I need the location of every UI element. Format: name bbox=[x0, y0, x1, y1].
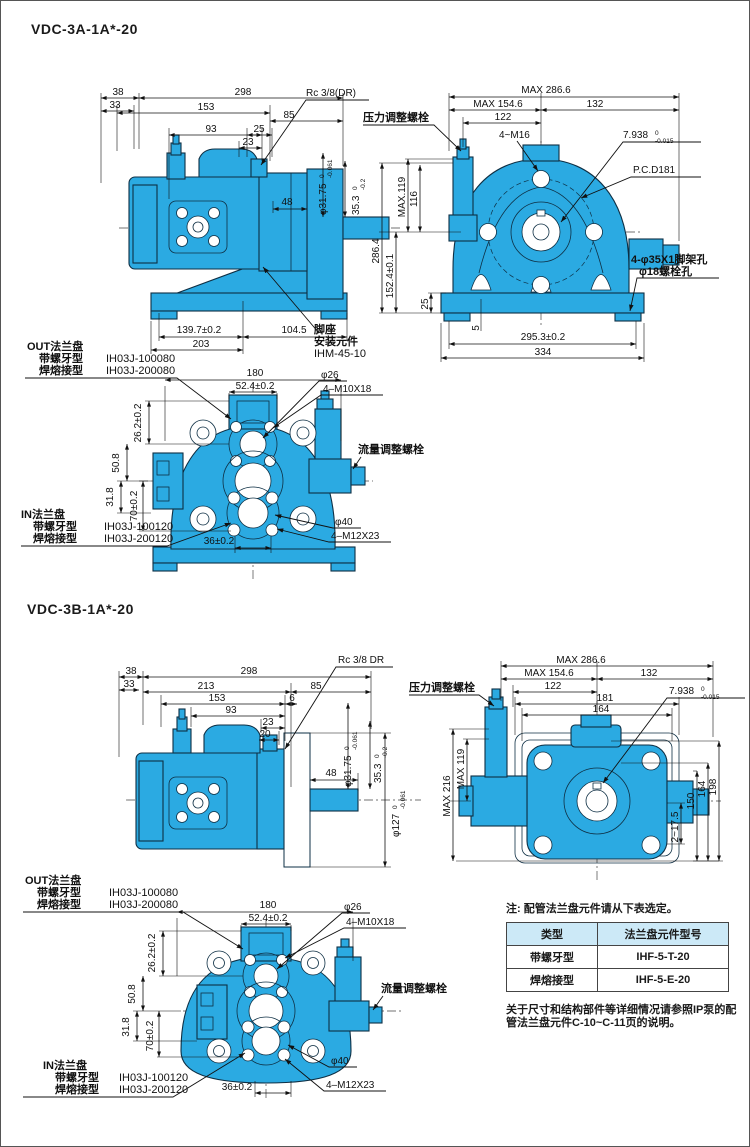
dim-50-8-b: 50.8 bbox=[127, 984, 138, 1004]
svg-text:0: 0 bbox=[352, 186, 359, 190]
svg-text:0: 0 bbox=[655, 130, 659, 137]
dim-48: 48 bbox=[281, 197, 293, 208]
table-row-threaded-type: 带螺牙型 bbox=[507, 946, 598, 969]
dim-164: 164 bbox=[593, 704, 610, 715]
dim-23: 23 bbox=[242, 137, 254, 148]
label-4m10-b: 4–M10X18 bbox=[346, 917, 395, 928]
dim-298-b: 298 bbox=[241, 666, 258, 677]
dim-85: 85 bbox=[283, 110, 295, 121]
dim-70: 70±0.2 bbox=[129, 490, 140, 521]
label-out-flange-b: OUT法兰盘 bbox=[25, 873, 81, 887]
dim-52-4-b: 52.4±0.2 bbox=[249, 913, 288, 924]
dim-7938-b: 7.938 bbox=[669, 686, 694, 697]
dim-132: 132 bbox=[587, 99, 604, 110]
view-3a-side: 38 298 33 153 85 93 25 23 Rc 3/8(DR) 48 … bbox=[101, 87, 401, 360]
dim-153-b: 153 bbox=[209, 693, 226, 704]
dim-33: 33 bbox=[109, 100, 121, 111]
label-pcd181: P.C.D181 bbox=[633, 165, 676, 176]
table-col-type: 类型 bbox=[507, 923, 598, 946]
dim-213: 213 bbox=[198, 681, 215, 692]
dim-max-286-6: MAX 286.6 bbox=[521, 85, 571, 96]
dim-104-5: 104.5 bbox=[281, 325, 306, 336]
dim-phi26: φ26 bbox=[321, 370, 339, 381]
dim-36-b: 36±0.2 bbox=[222, 1082, 253, 1093]
dim-7938: 7.938 bbox=[623, 130, 648, 141]
label-rc38-dr: Rc 3/8(DR) bbox=[306, 88, 356, 99]
dim-52-4: 52.4±0.2 bbox=[236, 381, 275, 392]
dim-key-height-b: 35.3 bbox=[373, 763, 384, 783]
svg-text:-0.2: -0.2 bbox=[382, 746, 389, 758]
label-out-threaded-a: 带螺牙型 bbox=[39, 351, 83, 365]
dim-max-154-6-b: MAX 154.6 bbox=[524, 668, 574, 679]
label-in-welded-b: 焊熔接型 bbox=[55, 1082, 99, 1096]
label-in-pn2-a: IH03J-200120 bbox=[104, 533, 173, 545]
dim-48-b: 48 bbox=[325, 768, 337, 779]
view-3b-front: MAX 286.6 MAX 154.6 132 122 181 164 7.93… bbox=[409, 655, 745, 881]
label-4m12-b: 4–M12X23 bbox=[326, 1080, 375, 1091]
svg-text:-0.2: -0.2 bbox=[360, 178, 367, 190]
label-in-pn1-a: IH03J-100120 bbox=[104, 521, 173, 533]
dim-164v: 164 bbox=[697, 780, 708, 797]
dim-20: 20 bbox=[259, 729, 271, 740]
dim-max-119a: MAX.119 bbox=[397, 176, 408, 217]
dim-122-b: 122 bbox=[545, 681, 562, 692]
flange-table: 类型 法兰盘元件型号 带螺牙型 IHF-5-T-20 焊熔接型 IHF-5-E-… bbox=[506, 922, 729, 992]
label-out-pn2-b: IH03J-200080 bbox=[109, 899, 178, 911]
dim-139-7: 139.7±0.2 bbox=[177, 325, 222, 336]
dim-33-b: 33 bbox=[123, 679, 135, 690]
label-mount-part: 安装元件 bbox=[314, 334, 358, 348]
label-4m10: 4–M10X18 bbox=[323, 384, 372, 395]
table-row-welded-type: 焊熔接型 bbox=[507, 969, 598, 992]
dim-181: 181 bbox=[597, 693, 614, 704]
dim-25: 25 bbox=[253, 124, 265, 135]
label-frame-hole-2: φ18螺栓孔 bbox=[639, 264, 692, 278]
dim-286-4: 286.4 bbox=[371, 238, 382, 263]
label-out-welded-b: 焊熔接型 bbox=[37, 897, 81, 911]
label-in-flange-a: IN法兰盘 bbox=[21, 507, 65, 521]
dim-70-b: 70±0.2 bbox=[145, 1020, 156, 1051]
svg-text:-0.061: -0.061 bbox=[352, 731, 359, 750]
dim-198: 198 bbox=[708, 778, 719, 795]
svg-text:-0.015: -0.015 bbox=[701, 694, 720, 701]
table-row-threaded-pn: IHF-5-T-20 bbox=[598, 946, 729, 969]
dim-key-height: 35.3 bbox=[351, 195, 362, 215]
dim-153: 153 bbox=[198, 102, 215, 113]
label-foot-seat: 脚座 bbox=[314, 322, 336, 336]
note-heading: 注: 配管法兰盘元件请从下表选定。 bbox=[506, 903, 738, 916]
label-4-m16: 4~M16 bbox=[499, 130, 530, 141]
dim-85-b: 85 bbox=[310, 681, 322, 692]
dim-31-8: 31.8 bbox=[105, 487, 116, 507]
dim-38: 38 bbox=[112, 87, 124, 98]
dim-23-b: 23 bbox=[262, 717, 274, 728]
dim-6: 6 bbox=[289, 693, 295, 704]
svg-text:-0.061: -0.061 bbox=[327, 159, 334, 178]
dim-122: 122 bbox=[495, 112, 512, 123]
dim-334: 334 bbox=[535, 347, 552, 358]
dim-2-17-5: 2~17.5 bbox=[670, 811, 681, 842]
dim-31-8-b: 31.8 bbox=[121, 1017, 132, 1037]
flange-note: 注: 配管法兰盘元件请从下表选定。 类型 法兰盘元件型号 带螺牙型 IHF-5-… bbox=[506, 903, 738, 1030]
dim-36: 36±0.2 bbox=[204, 536, 235, 547]
dim-26-2-b: 26.2±0.2 bbox=[147, 933, 158, 972]
label-rc38-dr-b: Rc 3/8 DR bbox=[338, 655, 384, 666]
dim-203: 203 bbox=[193, 339, 210, 350]
svg-text:0: 0 bbox=[319, 174, 326, 178]
label-out-threaded-b: 带螺牙型 bbox=[37, 885, 81, 899]
dim-150: 150 bbox=[686, 792, 697, 809]
label-frame-hole-1: 4-φ35X1脚架孔 bbox=[631, 252, 707, 266]
view-3b-side: 38 298 33 213 85 153 6 93 23 20 Rc 3/8 D… bbox=[119, 655, 421, 867]
dim-phi26-b: φ26 bbox=[344, 902, 362, 913]
dim-38-b: 38 bbox=[125, 666, 137, 677]
dim-50-8: 50.8 bbox=[111, 453, 122, 473]
dim-max-286-6-b: MAX 286.6 bbox=[556, 655, 606, 666]
svg-text:0: 0 bbox=[392, 805, 399, 809]
label-out-flange-a: OUT法兰盘 bbox=[27, 339, 83, 353]
label-out-pn2-a: IH03J-200080 bbox=[106, 365, 175, 377]
dim-298: 298 bbox=[235, 87, 252, 98]
label-in-pn1-b: IH03J-100120 bbox=[119, 1072, 188, 1084]
label-pressure-bolt-b: 压力调整螺栓 bbox=[409, 680, 475, 694]
dim-93: 93 bbox=[205, 124, 217, 135]
dim-max-216: MAX 216 bbox=[442, 775, 453, 817]
label-flow-bolt-b: 流量调整螺栓 bbox=[381, 981, 447, 995]
label-in-threaded-a: 带螺牙型 bbox=[33, 519, 77, 533]
dim-shaft-dia: φ31.75 bbox=[318, 183, 329, 215]
catalog-page: VDC-3A-1A*-20 VDC-3B-1A*-20 bbox=[0, 0, 750, 1147]
label-pressure-bolt-a: 压力调整螺栓 bbox=[363, 110, 429, 124]
dim-max-154-6: MAX 154.6 bbox=[473, 99, 523, 110]
dim-180: 180 bbox=[247, 368, 264, 379]
label-ihm-45-10: IHM-45-10 bbox=[314, 348, 366, 360]
label-flow-bolt-a: 流量调整螺栓 bbox=[358, 442, 424, 456]
dim-93-b: 93 bbox=[225, 705, 237, 716]
label-out-pn1-b: IH03J-100080 bbox=[109, 887, 178, 899]
dim-152-4: 152.4±0.1 bbox=[385, 253, 396, 298]
dim-max-119b: MAX 119 bbox=[456, 748, 467, 789]
dim-180-b: 180 bbox=[260, 900, 277, 911]
svg-text:0: 0 bbox=[344, 746, 351, 750]
label-4m12: 4–M12X23 bbox=[331, 531, 380, 542]
dim-26-2: 26.2±0.2 bbox=[133, 403, 144, 442]
dim-5: 5 bbox=[471, 325, 482, 331]
svg-text:-0.015: -0.015 bbox=[655, 138, 674, 145]
dim-phi40-b: φ40 bbox=[331, 1056, 349, 1067]
view-3a-bottom: 180 52.4±0.2 φ26 4–M10X18 26.2±0.2 50.8 … bbox=[21, 339, 424, 579]
svg-text:-0.061: -0.061 bbox=[400, 790, 407, 809]
dim-phi40: φ40 bbox=[335, 517, 353, 528]
view-3b-bottom: 180 52.4±0.2 φ26 4–M10X18 26.2±0.2 50.8 … bbox=[23, 873, 447, 1099]
table-col-pn: 法兰盘元件型号 bbox=[598, 923, 729, 946]
label-out-welded-a: 焊熔接型 bbox=[39, 363, 83, 377]
note-footer-1: 关于尺寸和结构部件等详细情况请参照IP泵的配 bbox=[506, 1004, 738, 1017]
label-in-threaded-b: 带螺牙型 bbox=[55, 1070, 99, 1084]
label-out-pn1-a: IH03J-100080 bbox=[106, 353, 175, 365]
dim-shaft-dia-b: φ31.75 bbox=[343, 755, 354, 787]
dim-phi127: φ127 bbox=[391, 813, 402, 837]
dim-25v: 25 bbox=[420, 298, 431, 310]
table-row-welded-pn: IHF-5-E-20 bbox=[598, 969, 729, 992]
label-in-flange-b: IN法兰盘 bbox=[43, 1058, 87, 1072]
label-in-welded-a: 焊熔接型 bbox=[33, 531, 77, 545]
view-3a-front: MAX 286.6 MAX 154.6 132 122 4~M16 7.938 … bbox=[363, 85, 719, 362]
dim-132-b: 132 bbox=[641, 668, 658, 679]
note-footer-2: 管法兰盘元件C-10~C-11页的说明。 bbox=[506, 1017, 738, 1030]
dim-116: 116 bbox=[409, 191, 420, 207]
svg-text:0: 0 bbox=[701, 686, 705, 693]
svg-text:0: 0 bbox=[374, 754, 381, 758]
dim-295-3: 295.3±0.2 bbox=[521, 332, 566, 343]
